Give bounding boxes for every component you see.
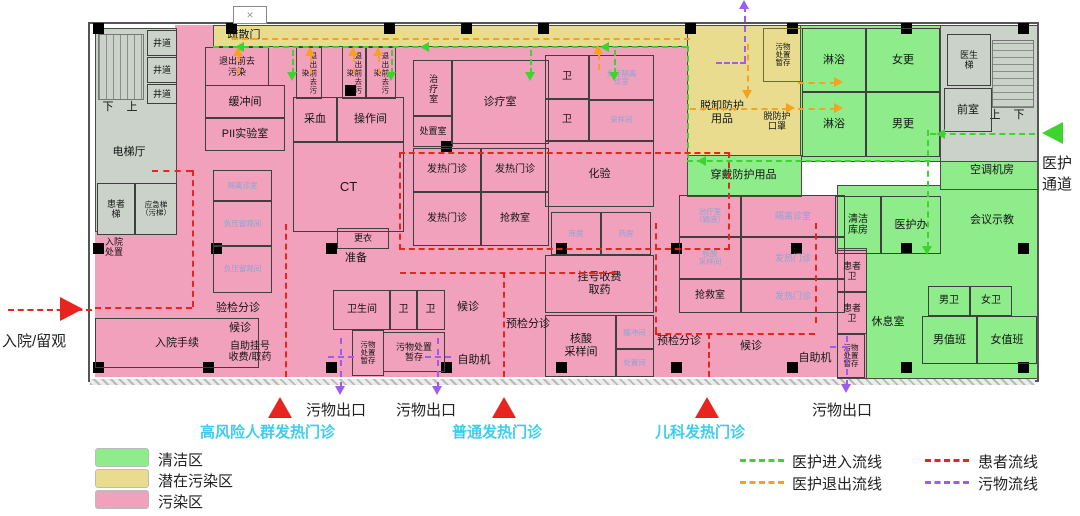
flow-staff-out-line — [747, 44, 749, 92]
flow-waste-line — [425, 356, 451, 358]
flow-patient-line — [655, 333, 815, 335]
room-self-machine: 自助机 — [452, 353, 496, 367]
room-toilet: 卫 — [545, 99, 589, 141]
flow-patient-line — [192, 170, 194, 307]
room-ct: CT — [293, 142, 404, 232]
room-female-toilet: 女卫 — [970, 286, 1012, 316]
flow-staff-out-stub — [353, 56, 355, 74]
room-triage-check: 验检分诊 — [206, 301, 270, 315]
room-shaft: 井道 — [147, 57, 177, 83]
staff-channel-marker — [1042, 122, 1063, 144]
flow-staff-out-line — [798, 82, 836, 84]
room-changing: 更衣 — [337, 228, 389, 249]
waste-exit-label: 污物出口 — [812, 399, 872, 420]
room-shower: 淋浴 — [802, 92, 866, 157]
room-rest: 休息室 — [860, 314, 916, 330]
room-toilet: 卫 — [389, 290, 418, 330]
flow-staff-out-arrow — [834, 77, 843, 87]
room-fever-clinic: 发热门诊 — [741, 237, 845, 279]
legend-swatch-clean — [95, 448, 149, 467]
entrance-label-pediatric: 儿科发热门诊 — [655, 421, 745, 442]
room-patient-toilet: 患者 卫 — [837, 250, 867, 292]
flow-staff-in-line — [930, 133, 1035, 135]
entrance-marker-pediatric — [695, 397, 719, 418]
legend-line-staff-out — [740, 481, 784, 484]
flow-patient-line — [655, 223, 657, 333]
legend-line-staff-in — [740, 459, 784, 462]
flow-patient-line — [503, 272, 505, 377]
room-female-duty: 女值班 — [977, 316, 1037, 364]
legend-label-contaminated: 污染区 — [158, 491, 203, 512]
entrance-marker-general — [492, 397, 516, 418]
flow-waste-arrow — [841, 384, 851, 393]
stairs-right — [992, 40, 1034, 108]
staff-channel-label: 医护 通道 — [1042, 152, 1078, 194]
admission-entrance-marker — [60, 297, 83, 321]
room-patient-lift: 患者 梯 — [97, 183, 135, 235]
flow-staff-out-arrow — [233, 47, 243, 56]
room-registration: 挂号收费 取药 — [545, 255, 654, 313]
flow-staff-out-arrow — [834, 103, 843, 113]
room-toilet: 卫 — [416, 290, 445, 330]
room-toilet: 卫 — [545, 55, 589, 99]
legend-swatch-potential — [95, 469, 149, 488]
room-staff-office: 医护办 — [881, 196, 941, 254]
room-rescue: 抢救室 — [679, 279, 741, 313]
room-iso-clinic: 隔离诊室 — [741, 195, 845, 237]
flow-staff-out-stub — [310, 56, 312, 74]
room-admission-disposal: 入院 处置 — [96, 233, 132, 261]
room-male-toilet: 男卫 — [928, 286, 970, 316]
flow-staff-in-arrow — [922, 246, 932, 255]
flow-staff-out-arrow — [742, 90, 752, 99]
flow-staff-in-line — [927, 130, 929, 248]
flow-waste-line — [846, 336, 848, 386]
flow-staff-in-stub — [530, 50, 532, 74]
room-male-duty: 男值班 — [922, 316, 977, 364]
flow-patient-line — [708, 333, 710, 377]
flow-staff-in-arrow — [420, 42, 429, 52]
legend-line-patient — [925, 459, 969, 462]
flow-patient-line — [815, 223, 817, 323]
room-ac-room: 空调机房 — [950, 162, 1034, 178]
legend-label-staff-out: 医护退出流线 — [792, 473, 882, 494]
room-buffer: 缓冲间 — [205, 85, 285, 119]
column — [461, 23, 472, 34]
flow-waste-arrow — [335, 386, 345, 395]
flow-patient-line — [152, 170, 192, 172]
flow-staff-out-line — [690, 108, 788, 110]
room-iso-obs: 负压留观间 — [213, 245, 272, 293]
floor-plan: 下 上 上 下 井道 井道 井道 电梯厅 患者 梯 应急梯 （污梯） 入院 处置… — [0, 0, 1080, 516]
column — [685, 23, 696, 34]
room-waiting: 候诊 — [222, 321, 258, 335]
entrance-label-general: 普通发热门诊 — [452, 421, 542, 442]
flow-staff-in-arrow — [609, 72, 619, 81]
stairs-left-up-label: 上 — [122, 100, 142, 114]
room-shaft: 井道 — [147, 30, 177, 56]
building-base-hatch — [90, 379, 1035, 385]
flow-patient-line — [400, 272, 615, 274]
flow-staff-in-arrow — [386, 72, 396, 81]
flow-staff-in-stub — [391, 50, 393, 74]
room-waiting: 候诊 — [450, 300, 486, 314]
room-waiting: 候诊 — [733, 339, 769, 353]
flow-staff-in-arrow — [287, 72, 297, 81]
door-icon: ✕ — [233, 6, 267, 24]
entrance-marker-high-risk — [268, 397, 292, 418]
flow-staff-out-arrow — [373, 47, 383, 56]
room-female-change: 女更 — [866, 28, 940, 92]
flow-staff-out-line — [798, 108, 836, 110]
room-pre-triage: 预检分诊 — [654, 334, 704, 348]
evac-door-label: 疏散门 — [215, 27, 273, 43]
room-toilet-main: 卫生间 — [333, 290, 391, 330]
flow-staff-out-stub — [238, 56, 240, 74]
legend-label-clean: 清洁区 — [158, 449, 203, 470]
flow-staff-in-stub — [614, 50, 616, 74]
room-prep: 准备 — [338, 251, 374, 265]
room-blood-draw: 采血 — [293, 97, 337, 142]
column — [1018, 23, 1029, 34]
legend-swatch-contaminated — [95, 490, 149, 509]
room-waste-storage: 污物处置 暂存 — [383, 332, 445, 372]
stairs-left-down-label: 下 — [98, 100, 118, 114]
room-waste-storage-v: 污物 处置 暂存 — [837, 334, 865, 378]
column — [901, 362, 912, 373]
flow-waste-line — [340, 338, 342, 388]
room-iso-clinic: 隔离诊室 — [213, 170, 272, 202]
room-nucleic: 核酸 采样间 — [545, 315, 617, 377]
room-disposal-small: 处置间 — [615, 348, 654, 377]
room-fever-clinic: 发热门诊 — [741, 279, 845, 313]
room-self-register: 自助挂号 收费/取药 — [218, 338, 282, 366]
room-clean-store: 清洁 库房 — [835, 196, 881, 254]
room-self-machine: 自助机 — [793, 351, 837, 365]
room-treatment: 治疗室 — [413, 60, 453, 117]
room-waste-storage-v: 污物 处置 暂存 — [352, 330, 384, 376]
flow-waste-arrow — [432, 386, 442, 395]
zone-potential — [213, 25, 689, 47]
room-front-room: 前室 — [944, 88, 992, 132]
column — [326, 243, 337, 254]
room-iso-obs: 负压留观间 — [213, 200, 272, 247]
room-buffer-small: 缓冲间 — [615, 315, 654, 350]
flow-waste-line — [437, 338, 439, 388]
flow-waste-line — [744, 6, 746, 62]
legend-label-waste: 污物流线 — [978, 473, 1038, 494]
flow-staff-in-stub — [292, 50, 294, 74]
legend-label-patient: 患者流线 — [978, 451, 1038, 472]
legend-label-staff-in: 医护进入流线 — [792, 451, 882, 472]
room-pii-lab: PII实验室 — [205, 117, 285, 151]
flow-staff-out-arrow — [348, 47, 358, 56]
flow-patient-line — [95, 307, 192, 309]
room-sample: 采样间 — [589, 99, 654, 141]
flow-staff-out-stub — [378, 56, 380, 74]
flow-patient-box — [399, 152, 730, 250]
room-doff-ppe: 脱卸防护 用品 — [686, 96, 758, 130]
room-operation: 操作间 — [337, 97, 404, 142]
column — [93, 23, 104, 34]
flow-staff-out-arrow — [593, 45, 603, 54]
flow-staff-in-arrow — [525, 72, 535, 81]
column — [1018, 243, 1029, 254]
flow-staff-in-line — [213, 46, 688, 48]
stairs-right-down-label: 下 — [1010, 109, 1028, 122]
flow-staff-out-line — [232, 38, 690, 40]
flow-patient-line — [285, 224, 287, 377]
room-pre-triage: 预检分诊 — [503, 317, 553, 331]
flow-waste-arrow — [739, 0, 749, 9]
flow-staff-in-arrow — [936, 129, 945, 139]
room-meeting: 会议示教 — [950, 212, 1034, 228]
admission-label: 入院/留观 — [2, 330, 88, 351]
column — [538, 23, 549, 34]
flow-waste-line — [716, 62, 746, 64]
column — [671, 362, 682, 373]
room-shaft: 井道 — [147, 84, 177, 104]
entrance-label-high-risk: 高风险人群发热门诊 — [200, 421, 335, 442]
room-doctor-lift: 医生 梯 — [947, 34, 991, 86]
column — [326, 362, 337, 373]
room-disposal: 处置室 — [413, 115, 453, 147]
legend-label-potential: 潜在污染区 — [158, 470, 233, 491]
flow-staff-out-arrow — [305, 47, 315, 56]
column — [384, 23, 395, 34]
flow-staff-out-stub — [598, 54, 600, 70]
flow-waste-line — [328, 356, 354, 358]
flow-waste-line — [830, 346, 848, 348]
flow-staff-out-arrow — [786, 103, 795, 113]
legend-line-waste — [925, 481, 969, 484]
flow-staff-in-line — [687, 46, 689, 158]
waste-exit-label: 污物出口 — [396, 399, 456, 420]
room-waste-storage-v: 污物 处置 暂存 — [763, 28, 803, 82]
stairs-left — [98, 34, 144, 100]
room-emergency-lift: 应急梯 （污梯） — [135, 183, 177, 235]
room-elevator-hall: 电梯厅 — [98, 145, 160, 160]
waste-exit-label: 污物出口 — [306, 399, 366, 420]
